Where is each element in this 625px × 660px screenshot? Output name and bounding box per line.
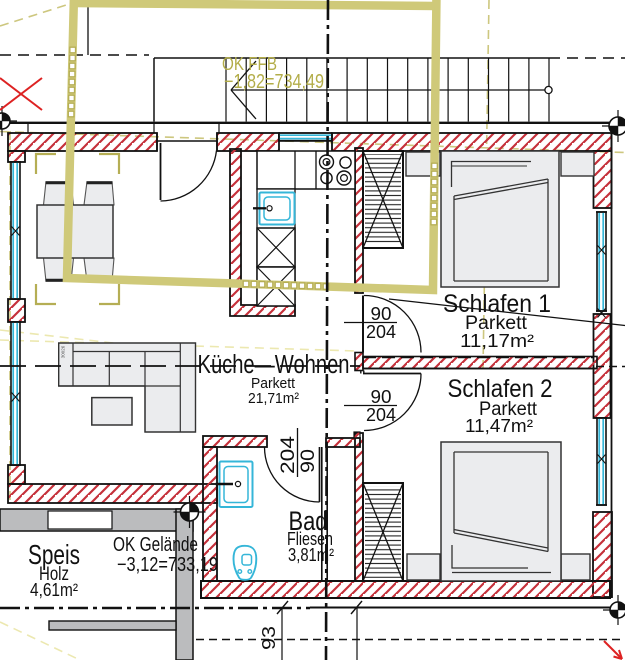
- svg-text:204: 204: [366, 322, 396, 342]
- svg-text:3,81m²: 3,81m²: [288, 545, 334, 565]
- svg-text:93: 93: [259, 626, 279, 650]
- svg-text:90: 90: [298, 449, 319, 473]
- svg-text:11,17m²: 11,17m²: [460, 331, 534, 351]
- svg-text:90: 90: [371, 304, 392, 324]
- svg-text:−3,12=733,19: −3,12=733,19: [117, 554, 218, 576]
- svg-text:204: 204: [366, 405, 396, 425]
- svg-text:−1,82=734,49: −1,82=734,49: [224, 71, 324, 93]
- svg-text:4,61m²: 4,61m²: [30, 580, 78, 600]
- svg-text:11,47m²: 11,47m²: [465, 416, 533, 436]
- svg-text:21,71m²: 21,71m²: [248, 390, 299, 407]
- svg-text:90: 90: [371, 387, 392, 407]
- svg-text:OK Gelände: OK Gelände: [113, 534, 198, 556]
- svg-text:204: 204: [278, 435, 299, 474]
- svg-text:30026: 30026: [61, 345, 66, 358]
